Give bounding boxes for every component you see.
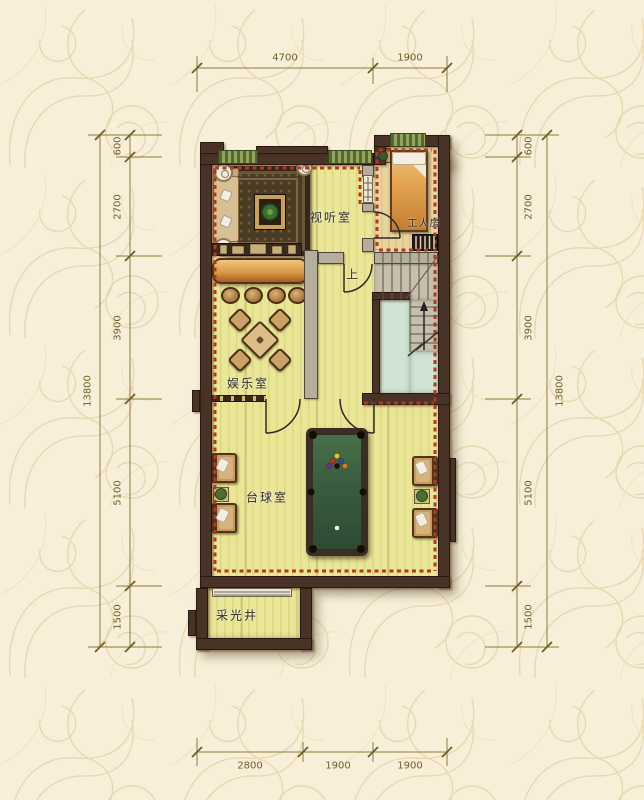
dim-right-1500: 1500	[524, 604, 535, 629]
wall-pier-top	[256, 146, 328, 154]
window-top-2	[328, 150, 372, 164]
room-label-av: 视听室	[310, 209, 352, 226]
dim-left-600: 600	[113, 136, 124, 155]
partition-wall-jamb	[362, 203, 374, 212]
room-label-light-well: 采光井	[216, 607, 258, 624]
window-top-1	[218, 150, 258, 164]
dim-right-2700: 2700	[524, 194, 535, 219]
partition-wall-stub	[362, 238, 374, 252]
worker-room-bottom-wall	[374, 252, 438, 264]
dim-left-3900: 3900	[113, 315, 124, 340]
light-well-wall-bump	[188, 610, 196, 636]
light-well-wall-bottom	[196, 638, 312, 650]
stair-void-wall-top	[372, 292, 410, 300]
bed-pillow	[392, 152, 426, 165]
dim-left-5100: 5100	[113, 480, 124, 505]
coffee-table	[254, 194, 286, 230]
exterior-wall-bottom	[200, 576, 450, 588]
side-table-lamp-top	[214, 163, 233, 182]
room-label-worker: 工人房	[408, 215, 441, 230]
radiator-rack	[412, 234, 438, 251]
bar-stool-2	[244, 287, 263, 304]
room-label-billiards: 台球室	[246, 489, 288, 506]
dim-top-4700: 4700	[272, 53, 297, 64]
central-wall	[304, 250, 318, 399]
dim-bottom-1900b: 1900	[397, 761, 422, 772]
half-wall-railing	[212, 395, 266, 402]
wall-bump-right	[450, 458, 456, 542]
stair-up-label: 上	[346, 266, 358, 283]
window-worker-room	[390, 133, 426, 147]
stair-bottom-wall	[362, 393, 450, 405]
exterior-wall-right	[438, 135, 450, 588]
exterior-wall-left	[200, 153, 212, 588]
window-partition	[363, 175, 373, 203]
stair-void	[379, 299, 410, 393]
window-light-well	[212, 588, 292, 597]
stair-right-flight	[410, 300, 438, 352]
dim-right-600: 600	[524, 136, 535, 155]
bar-counter	[212, 258, 308, 284]
dim-bottom-1900a: 1900	[325, 761, 350, 772]
armchair-left-2	[211, 503, 237, 533]
armchair-left-1	[211, 453, 237, 483]
dim-right-5100: 5100	[524, 480, 535, 505]
dim-right-3900: 3900	[524, 315, 535, 340]
hall-wall-stub	[318, 252, 344, 264]
sofa	[213, 176, 239, 242]
bar-stool-1	[221, 287, 240, 304]
room-label-entertainment: 娱乐室	[227, 375, 269, 392]
plant-table-left	[213, 487, 229, 502]
armchair-right-1	[412, 456, 438, 486]
dim-bottom-2800: 2800	[237, 761, 262, 772]
dim-left-total-13800: 13800	[83, 375, 94, 407]
wall-bump-left	[192, 390, 200, 412]
dim-right-total-13800: 13800	[555, 375, 566, 407]
dim-left-2700: 2700	[113, 194, 124, 219]
plant-table-right	[414, 489, 430, 504]
stair-void-wall-left	[372, 292, 380, 399]
dim-left-1500: 1500	[113, 604, 124, 629]
pool-table	[306, 428, 368, 556]
bar-stool-3	[267, 287, 286, 304]
bar-back-shelf	[212, 243, 302, 256]
dim-top-1900: 1900	[397, 53, 422, 64]
stair-void-lower	[410, 352, 438, 393]
armchair-right-2	[412, 508, 438, 538]
floor-plan-page: 视听室 工人房 娱乐室 台球室 采光井 上 4700 1900 2800 190…	[0, 0, 644, 800]
